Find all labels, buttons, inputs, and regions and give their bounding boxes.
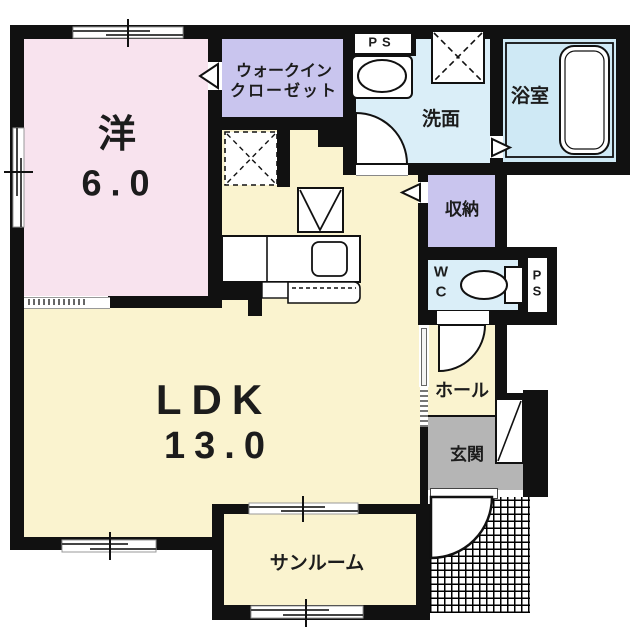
label-wc: W C [434,263,448,302]
label-ldk: LDK [156,376,272,424]
window-sunroom-top [249,496,358,522]
label-washroom: 洗面 [422,109,460,131]
window-left [4,128,33,227]
washroom-door-arc [356,113,407,164]
label-ps-top: PS [368,36,395,51]
fridge-space-icon [225,132,277,185]
label-closet-line1: ウォークイン [236,63,332,81]
storage-door-wedge [402,184,420,201]
label-western: 洋 [98,114,136,158]
cooktop-icon [312,242,347,276]
window-top [73,19,183,47]
label-ps-side: P S [533,267,542,298]
label-closet-line2: クローゼット [230,83,338,101]
label-storage: 収納 [445,200,479,220]
label-sunroom: サンルーム [270,553,364,575]
window-ldk-bottom [62,532,156,560]
label-hall: ホール [435,381,489,402]
wc-hall-door-arc [439,325,485,371]
entrance-door-arc [431,497,492,558]
label-ldk-area: 13.0 [164,425,274,469]
label-western-area: 6.0 [81,162,158,203]
washbasin-icon [358,60,406,92]
label-entrance: 玄関 [450,445,484,465]
label-bathroom: 浴室 [511,86,549,108]
kitchen-sink-icon [298,188,343,232]
counter-return [288,282,360,303]
window-sunroom-bottom [251,599,363,627]
toilet-icon [461,271,507,299]
floor-plan: 洋 6.0 ウォークイン クローゼット PS 洗面 浴室 収納 W C P S … [0,0,640,640]
